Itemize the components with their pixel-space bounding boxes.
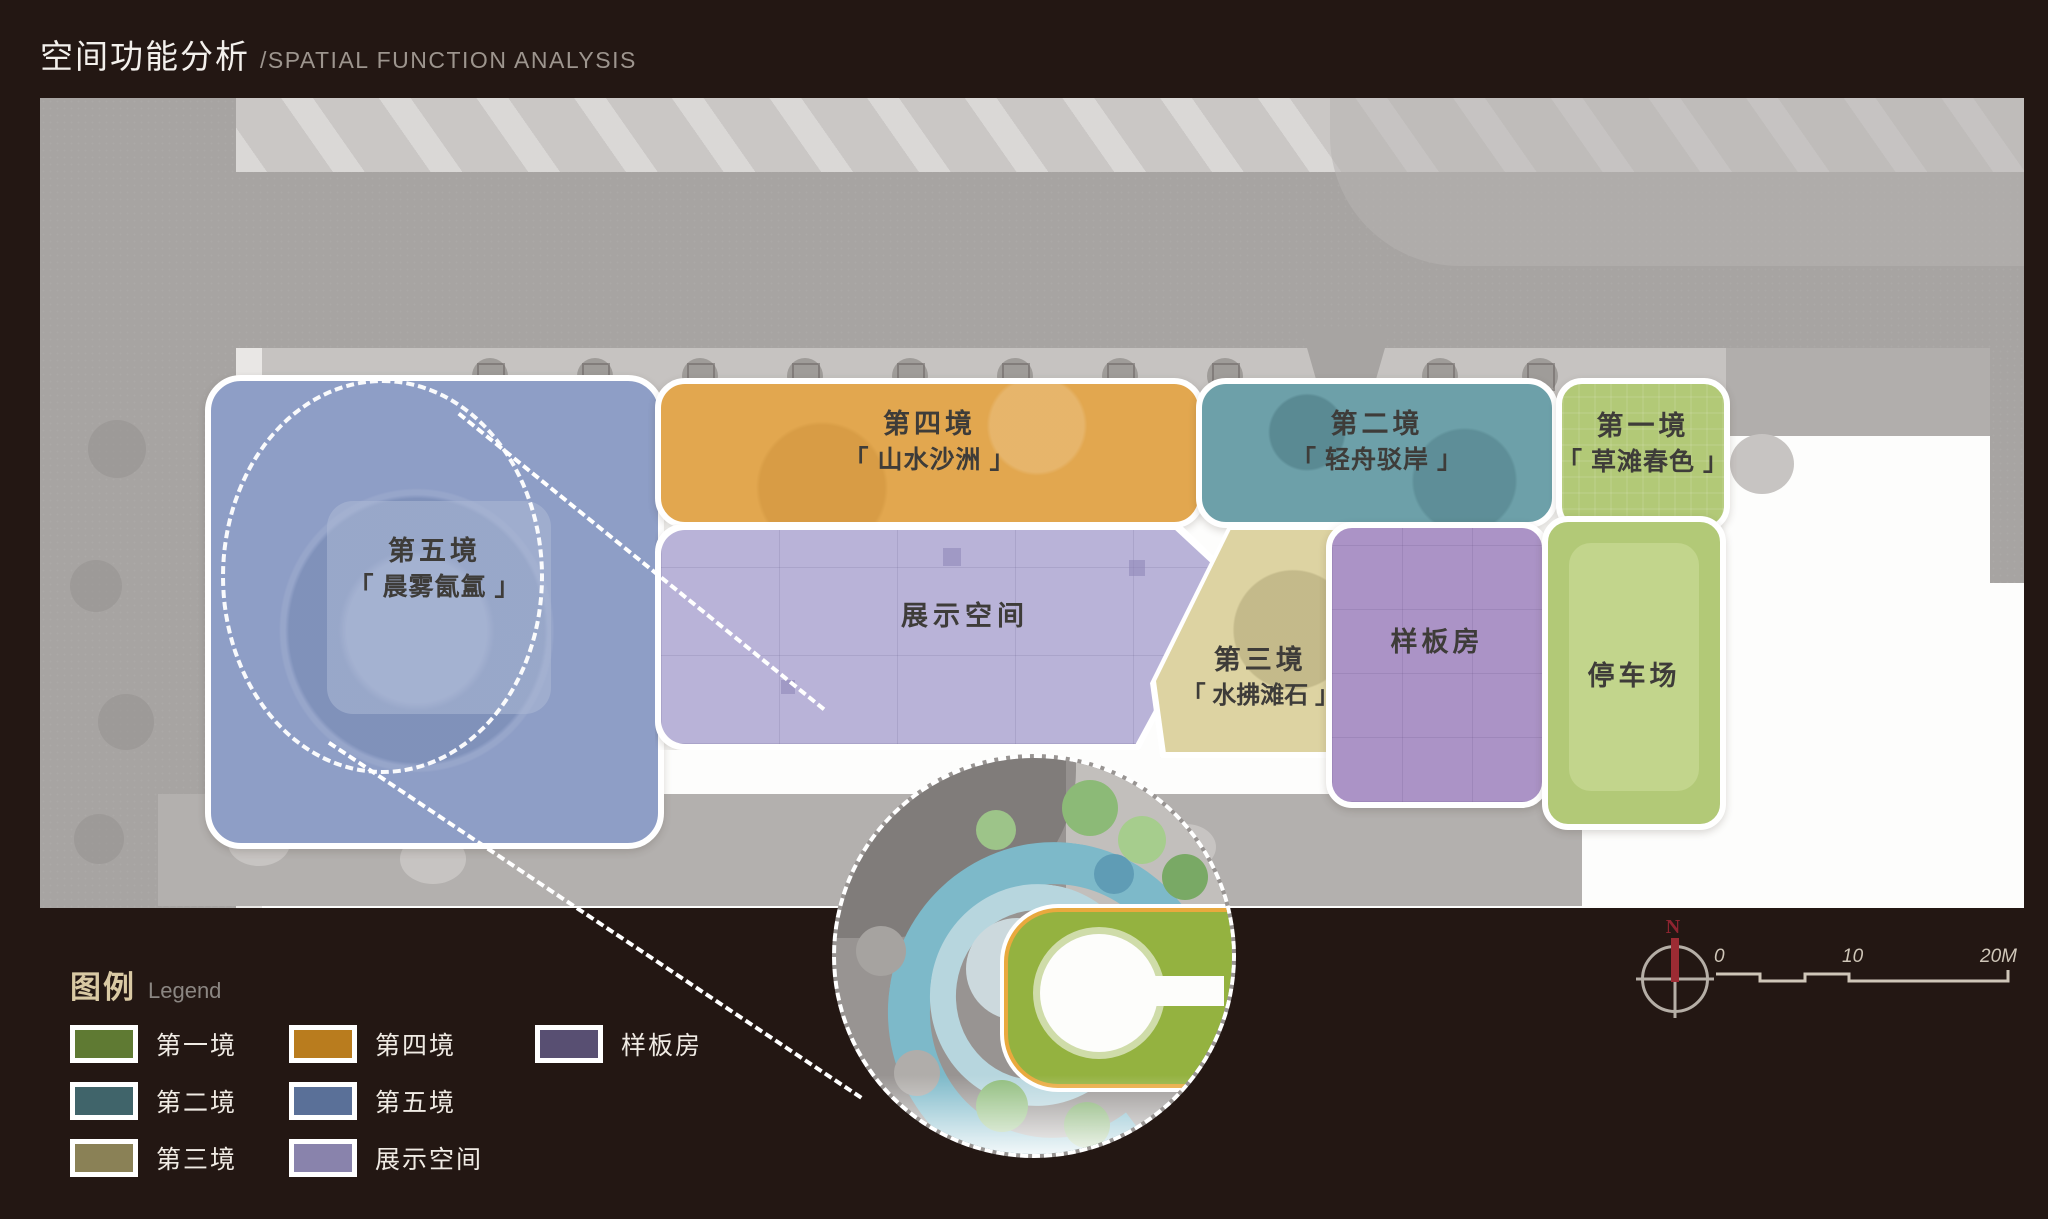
page-title-zh: 空间功能分析: [40, 30, 250, 78]
compass-needle: [1671, 938, 1679, 982]
legend: 图例 Legend 第一境 第二境 第三境 第四境 第: [70, 962, 702, 1177]
zone-model-house: 样板房: [1326, 522, 1548, 808]
zone-one-subtitle: 「 草滩春色 」: [1557, 444, 1729, 480]
legend-swatch: [535, 1025, 603, 1063]
tree-icon: [88, 420, 146, 478]
legend-title-en: Legend: [148, 978, 221, 1004]
legend-swatch: [289, 1082, 357, 1120]
road-right-extension: [1726, 348, 2024, 436]
pond-icon: [1094, 854, 1134, 894]
legend-label: 第四境: [375, 1026, 456, 1062]
legend-swatch: [289, 1025, 357, 1063]
road-corner-curve: [1330, 98, 2024, 266]
inset-building-stub: [1154, 976, 1224, 1006]
zone-two-title: 第二境: [1291, 406, 1463, 442]
scale-label-20m: 20M: [1980, 946, 2017, 968]
legend-swatch: [70, 1139, 138, 1177]
detail-inset: [832, 754, 1236, 1158]
scale-bar-line: [1712, 968, 2024, 988]
legend-label: 展示空间: [375, 1140, 483, 1176]
legend-title-zh: 图例: [70, 962, 136, 1007]
legend-item: 第四境: [289, 1025, 483, 1063]
floorplan-mark: [943, 548, 961, 566]
tree-icon: [976, 810, 1016, 850]
zone-one-title: 第一境: [1557, 408, 1729, 444]
legend-item: 第一境: [70, 1025, 237, 1063]
legend-swatch: [70, 1082, 138, 1120]
tree-icon: [98, 694, 154, 750]
scale-label-0: 0: [1714, 946, 1725, 968]
legend-item: 第五境: [289, 1082, 483, 1120]
zone-five-subtitle: 「 晨雾氤氲 」: [349, 569, 521, 605]
legend-item: 样板房: [535, 1025, 702, 1063]
tree-icon: [856, 926, 906, 976]
inset-building-circle: [1040, 934, 1158, 1052]
legend-item: 第二境: [70, 1082, 237, 1120]
zone-parking: 停车场: [1542, 516, 1726, 830]
zone-three-subtitle: 「 水拂滩石 」: [1182, 678, 1339, 714]
tree-icon: [1062, 780, 1118, 836]
legend-swatch: [289, 1139, 357, 1177]
legend-label: 第五境: [375, 1083, 456, 1119]
zone-parking-label: 停车场: [1588, 654, 1681, 693]
scale-bar: 0 10 20M: [1712, 946, 2024, 992]
zone-two-subtitle: 「 轻舟驳岸 」: [1291, 442, 1463, 478]
floorplan-mark: [1129, 560, 1145, 576]
legend-swatch: [70, 1025, 138, 1063]
zone-three-title: 第三境: [1182, 642, 1339, 678]
scale-label-10: 10: [1842, 946, 1863, 968]
legend-label: 样板房: [621, 1026, 702, 1062]
zone-exhibition-label: 展示空间: [901, 594, 1029, 633]
legend-label: 第三境: [156, 1140, 237, 1176]
compass-north-label: N: [1663, 916, 1683, 939]
legend-label: 第二境: [156, 1083, 237, 1119]
legend-label: 第一境: [156, 1026, 237, 1062]
zone-four-realm: 第四境 「 山水沙洲 」: [655, 378, 1204, 528]
zone-five-title: 第五境: [349, 533, 521, 569]
zone-four-subtitle: 「 山水沙洲 」: [844, 442, 1016, 478]
page-title-en: /SPATIAL FUNCTION ANALYSIS: [260, 47, 637, 74]
inset-fade: [836, 1075, 1232, 1154]
legend-item: 第三境: [70, 1139, 237, 1177]
legend-item: 展示空间: [289, 1139, 483, 1177]
compass-icon: [1641, 945, 1709, 1013]
zone-model-house-label: 样板房: [1391, 620, 1484, 659]
zone-exhibition: 展示空间: [655, 524, 1232, 750]
tree-icon: [70, 560, 122, 612]
zone-one-realm: 第一境 「 草滩春色 」: [1556, 378, 1730, 532]
road-right-strip: [1990, 348, 2024, 583]
zone-two-realm: 第二境 「 轻舟驳岸 」: [1196, 378, 1558, 528]
zone-five-realm: 第五境 「 晨雾氤氲 」: [205, 375, 664, 849]
tree-icon: [1730, 434, 1794, 494]
tree-icon: [74, 814, 124, 864]
zone-four-title: 第四境: [844, 406, 1016, 442]
page-title: 空间功能分析 /SPATIAL FUNCTION ANALYSIS: [40, 30, 637, 78]
tree-icon: [1162, 854, 1208, 900]
